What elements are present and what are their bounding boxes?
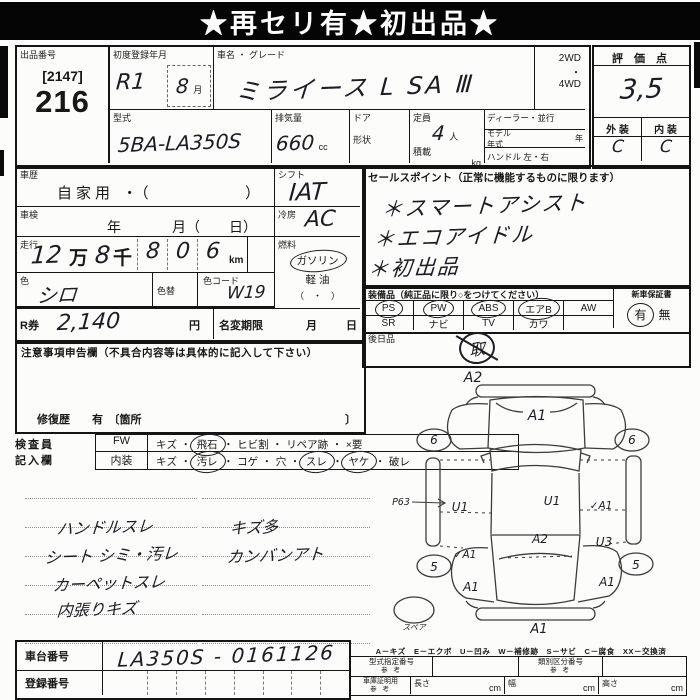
displacement-cell: 排気量 660 cc [272, 110, 350, 163]
registration-row: 登録番号 [17, 671, 349, 695]
condition-item: 飛石 [195, 437, 220, 452]
registration-label: 登録番号 [17, 671, 103, 695]
chassis-row: 車台番号 LA350S - 0161126 [17, 642, 349, 671]
door-label: ドア [350, 110, 409, 125]
damage-annotation: A1 [529, 622, 547, 637]
rticket-value: 2,140 [56, 309, 121, 336]
ext-int-values: C C [594, 137, 689, 161]
inspector-row-labels: 検査員 記入欄 [15, 436, 93, 468]
note-text: 内張りキズ [56, 595, 138, 622]
recolor-cell: 色替 [152, 273, 198, 306]
score-label: 評 価 点 [594, 47, 689, 66]
equipment-item-SR: SR [364, 316, 413, 330]
lot-number: 216 [17, 84, 108, 120]
spec-ref-row1: 型式指定番号 参 考 類別区分番号 参 考 [351, 657, 686, 677]
sales-line: ＊エコアイドル [373, 218, 536, 254]
exterior-grade-cell: C [594, 137, 642, 161]
ac-cell: 冷房 AC [275, 207, 360, 237]
class-ref-cell: 類別区分番号 参 考 [519, 657, 603, 676]
condition-item: リペア跡 [286, 439, 328, 451]
side-mirrors [481, 453, 590, 463]
mileage-digit: 8 [145, 239, 161, 264]
registration-value-cells [103, 671, 349, 695]
mileage-digit: 0 [175, 239, 191, 264]
damage-annotation: ✓A1 [454, 549, 477, 561]
damage-annotation: 5 [430, 560, 438, 574]
height-label: 高さ [602, 678, 618, 689]
fw-cell: FW [96, 435, 148, 451]
type-ref-value [433, 657, 519, 676]
color-label: 色 [20, 274, 29, 287]
recolor-label: 色替 [157, 284, 175, 297]
first-registration-cell: 初度登録年月 R1 8 月 [110, 47, 214, 110]
equipment-header: 装備品（純正品に限り○をつけてください） 新車保証書 [364, 287, 689, 300]
damage-annotation: A2 [463, 370, 483, 386]
mileage-man-unit: 万 [69, 243, 88, 270]
damage-annotation: P63 [392, 497, 410, 508]
class-ref-label: 類別区分番号 [538, 657, 583, 666]
front-fender-right [585, 404, 626, 449]
height-unit: cm [671, 683, 683, 693]
condition-item: キズ [156, 439, 177, 451]
inspector-label-1: 検査員 [15, 436, 93, 452]
warranty-cell: 有 無 [613, 300, 689, 328]
scan-artifact [0, 46, 8, 118]
damage-annotation: A1 [598, 575, 615, 589]
type-ref-label: 型式指定番号 [369, 657, 414, 666]
score-value: 3,5 [619, 73, 664, 105]
condition-item: ヒビ割 [237, 439, 269, 451]
reg-month-unit: 月 [193, 85, 202, 95]
reg-month-value: 8 [175, 74, 189, 98]
rticket-unit: 円 [189, 317, 200, 333]
scan-artifact [0, 150, 4, 176]
model-year-row: モデル年式 年 [485, 130, 585, 148]
damage-annotation: スペア [402, 623, 426, 632]
condition-item: 穴 [276, 456, 287, 468]
shape-label: 形状 [350, 125, 409, 146]
rear-bumper [476, 608, 595, 620]
drive-dot: ・ [535, 64, 581, 79]
equipment-item-label: ABS [476, 303, 500, 314]
equipment-item-AW: AW [563, 301, 613, 315]
fuel-paren: （ ・ ） [275, 289, 360, 302]
item-separator: ・ [259, 457, 275, 468]
displacement-value: 660 [275, 130, 315, 155]
warranty-no: 無 [659, 306, 671, 323]
color-value: シロ [36, 278, 78, 308]
class-ref-sub: 参 考 [519, 667, 602, 674]
sales-line: ＊スマートアシスト [381, 186, 589, 223]
equipment-item-empty [563, 316, 613, 330]
interior-grade-cell: C [642, 137, 689, 161]
note-text: シート シミ・汚レ [44, 540, 179, 569]
inspection-cell: 車検 年 月（ 日） [17, 207, 274, 237]
damage-annotation: A1 [462, 580, 479, 594]
damage-annotation: 6 [628, 433, 636, 447]
damage-annotation: 6 [430, 433, 438, 447]
car-diagram-svg: A2A166P63U1U1✓A1A2U3✓A155A1A1A1スペア [368, 352, 690, 644]
dealer-stack-cell: ディーラー・並行 モデル年式 年 ハンドル 左・右 [485, 110, 585, 163]
auction-sheet: ★再セリ有★初出品★ 出品番号 [2147] 216 初度登録年月 R1 8 月… [0, 0, 700, 700]
capacity-value: 4 [431, 121, 445, 145]
width-cell: 幅 cm [505, 677, 599, 694]
warranty-yes: 有 [632, 306, 648, 323]
name-change-month: 月 [306, 317, 317, 333]
color-row: 色 シロ 色替 色コード W19 [17, 273, 274, 308]
cabin-sides [491, 473, 580, 534]
banner-title: ★再セリ有★初出品★ [200, 2, 500, 41]
fuel-cell: 燃料 ガソリン 軽 油 （ ・ ） [275, 237, 360, 308]
history-value: 自家用 ・（ [57, 182, 153, 203]
score-value-cell: 3,5 [594, 66, 689, 117]
equipment-item-label: PS [380, 303, 397, 314]
first-registration-value: R1 [115, 69, 146, 95]
interior-label: 内 装 [642, 118, 689, 136]
first-registration-label: 初度登録年月 [110, 47, 213, 62]
note-text: キズ多 [229, 513, 279, 539]
ac-label: 冷房 [275, 207, 299, 222]
mileage-sen-unit: 千 [113, 243, 132, 270]
sales-line: ＊初出品 [367, 250, 461, 283]
drive-4wd: 4WD [535, 79, 581, 90]
chassis-value-cell: LA350S - 0161126 [103, 642, 349, 670]
equipment-item-label: エアB [523, 301, 554, 316]
later-items-label: 後日品 [368, 332, 395, 345]
inspection-label: 車検 [20, 208, 38, 221]
model-year-unit: 年 [575, 133, 583, 144]
history-cell: 車歴 自家用 ・（ ） [17, 167, 274, 207]
equipment-item-PS: PS [364, 301, 413, 315]
class-ref-value [603, 657, 686, 676]
caution-box: 注意事項申告欄（不具合内容等は具体的に記入して下さい） 修復歴 有 〔箇所 〕 [15, 340, 366, 434]
annotation-arrow [412, 499, 445, 507]
garage-sub: 参 考 [351, 686, 410, 693]
top-banner: ★再セリ有★初出品★ [0, 2, 700, 40]
mileage-man-value: 12 [30, 240, 63, 269]
exterior-grade: C [611, 137, 624, 157]
rocker-right [626, 456, 641, 544]
fuel-gasoline: ガソリン [295, 253, 341, 268]
drive-cell: 2WD ・ 4WD [534, 47, 585, 110]
mileage-unit: km [229, 255, 243, 266]
right-mid-col: シフト IAT 冷房 AC 燃料 ガソリン 軽 油 （ ・ ） [274, 167, 360, 308]
lot-bracket: [2147] [17, 68, 108, 84]
length-label: 長さ [414, 678, 430, 689]
mileage-digit-cell: 6 [197, 239, 228, 270]
width-label: 幅 [508, 678, 516, 689]
equipment-item-label: AW [581, 303, 597, 314]
equipment-item-label: TV [482, 318, 495, 329]
garage-label: 車庫証明用 [363, 678, 398, 685]
lot-label: 出品番号 [17, 47, 108, 62]
mileage-cell: 走行 12 万 8 千 8 0 6 km [17, 237, 274, 273]
front-fender-left [448, 404, 489, 449]
fuel-gas-wrap: ガソリン [275, 253, 360, 268]
mileage-digit-cell: 8 [137, 239, 168, 270]
damage-annotation: 5 [632, 558, 640, 572]
ac-value: AC [304, 206, 336, 232]
rticket-label: R券 [20, 317, 39, 333]
note-text: カーペットスレ [52, 568, 166, 596]
equipment-item-TV: TV [463, 316, 513, 330]
lot-cell: 出品番号 [2147] 216 [17, 47, 110, 163]
warranty-label: 新車保証書 [613, 287, 689, 300]
spec-ref-table: 型式指定番号 参 考 類別区分番号 参 考 車庫証明用 参 考 長さ cm 幅 … [350, 656, 687, 696]
load-label: 積載 [410, 145, 484, 158]
inspection-month: 月（ [172, 217, 200, 237]
model-code-label: 型式 [110, 110, 271, 125]
car-name-label: 車名 ・ グレード [214, 47, 534, 62]
ext-int-header: 外 装 内 装 [594, 117, 689, 137]
condition-item: ×要 [346, 439, 363, 451]
repair-history-text: 修復歴 有 〔箇所 [37, 411, 142, 427]
inspector-label-2: 記入欄 [15, 452, 93, 468]
drive-2wd: 2WD [535, 53, 581, 64]
length-cell: 長さ cm [411, 677, 505, 694]
equipment-item-PW: PW [413, 301, 463, 315]
mileage-digit-cell: 0 [167, 239, 198, 270]
height-cell: 高さ cm [599, 677, 686, 694]
history-label: 車歴 [17, 167, 274, 182]
type-ref-cell: 型式指定番号 参 考 [351, 657, 433, 676]
capacity-label: 定員 [410, 110, 484, 125]
windshield [490, 445, 581, 472]
spec-ref-row2: 車庫証明用 参 考 長さ cm 幅 cm 高さ cm [351, 677, 686, 694]
equipment-item-ABS: ABS [463, 301, 513, 315]
notes-area: ハンドルスレ シート シミ・汚レ カーペットスレ 内張りキズ キズ多 カンバンア… [15, 470, 370, 640]
rticket-row: R券 2,140 円 名変期限 月 日 [17, 308, 360, 338]
caution-label: 注意事項申告欄（不具合内容等は具体的に記入して下さい） [17, 342, 364, 363]
scan-artifact [694, 42, 700, 88]
chassis-label: 車台番号 [17, 642, 103, 670]
equipment-item-label: SR [382, 318, 396, 329]
length-unit: cm [489, 683, 501, 693]
inspection-day: 日） [229, 217, 257, 237]
fuel-diesel: 軽 油 [275, 272, 360, 287]
equipment-label: 装備品（純正品に限り○をつけてください） [364, 287, 613, 300]
equipment-body: PSPWABSエアBAW SRナビTVカワ 有 無 [364, 300, 689, 328]
history-close: ） [245, 182, 260, 203]
mileage-empty-cell [247, 237, 275, 273]
model-year-label: モデル年式 [487, 128, 511, 150]
chassis-value: LA350S - 0161126 [116, 640, 335, 672]
displacement-unit: cc [319, 142, 328, 152]
item-separator: ・ [329, 440, 345, 451]
equipment-item-label: PW [428, 303, 448, 314]
note-text: カンバンアト [226, 540, 325, 567]
rear-fender-right [578, 546, 622, 602]
score-box: 評 価 点 3,5 外 装 内 装 C C [592, 45, 691, 169]
type-ref-sub: 参 考 [351, 667, 432, 674]
sales-point-box: セールスポイント（正常に機能するものに限ります） ＊スマートアシスト ＊エコアイ… [362, 165, 691, 289]
condition-item: コゲ [237, 456, 258, 468]
damage-annotation: A2 [531, 532, 548, 546]
equipment-row-1: PSPWABSエアBAW [364, 300, 613, 315]
color-code-value: W19 [226, 282, 266, 303]
mid-table: 車歴 自家用 ・（ ） 車検 年 月（ 日） 走行 12 万 8 千 8 0 6… [15, 165, 366, 344]
equipment-grid: PSPWABSエアBAW SRナビTVカワ [364, 300, 613, 328]
condition-item: キズ [156, 456, 177, 468]
damage-annotation: U3 [596, 535, 612, 549]
equipment-item-ナビ: ナビ [413, 316, 463, 330]
damage-annotation: A1 [527, 408, 546, 424]
reg-month-subcell: 8 月 [167, 65, 211, 107]
mileage-digit: 6 [205, 239, 221, 264]
damage-annotation: U1 [452, 500, 468, 514]
name-change-cell: 名変期限 月 日 [213, 309, 360, 339]
shift-cell: シフト IAT [275, 167, 360, 207]
capacity-unit: 人 [449, 132, 458, 142]
damage-annotation: U1 [544, 494, 560, 508]
front-bumper [476, 385, 595, 397]
name-change-day: 日 [346, 317, 357, 333]
name-change-label: 名変期限 [219, 317, 263, 333]
sales-point-lines: ＊スマートアシスト ＊エコアイドル ＊初出品 [364, 188, 689, 282]
door-cell: ドア 形状 [350, 110, 410, 163]
model-code-value: 5BA-LA350S [117, 129, 242, 157]
exterior-label: 外 装 [594, 118, 642, 136]
repair-history-close: 〕 [345, 411, 356, 427]
garage-cell: 車庫証明用 参 考 [351, 677, 411, 694]
capacity-cell: 定員 4 人 積載 kg [410, 110, 485, 163]
sales-point-label: セールスポイント（正常に機能するものに限ります） [364, 167, 689, 188]
interior-grade: C [659, 137, 672, 157]
condition-item: 汚レ [195, 454, 220, 469]
width-unit: cm [583, 683, 595, 693]
interior-cell: 内装 [96, 452, 148, 469]
model-code-cell: 型式 5BA-LA350S [110, 110, 272, 163]
inspection-year: 年 [107, 217, 121, 237]
equipment-item-エアB: エアB [513, 301, 563, 315]
note-text: ハンドルスレ [56, 512, 154, 539]
displacement-label: 排気量 [272, 110, 349, 125]
header-table: 出品番号 [2147] 216 初度登録年月 R1 8 月 車名 ・ グレード … [15, 45, 591, 169]
spare-tire [394, 597, 434, 623]
car-name-cell: 車名 ・ グレード ミライース L SA Ⅲ [214, 47, 534, 110]
car-name-value: ミライース L SA Ⅲ [234, 64, 476, 107]
equipment-box: 装備品（純正品に限り○をつけてください） 新車保証書 PSPWABSエアBAW … [362, 285, 691, 334]
chassis-table: 車台番号 LA350S - 0161126 登録番号 [15, 640, 351, 700]
damage-annotation: ✓A1 [590, 500, 613, 512]
shift-value: IAT [288, 177, 326, 206]
car-diagram: A2A166P63U1U1✓A1A2U3✓A155A1A1A1スペア [368, 352, 690, 644]
mileage-sen-value: 8 [94, 241, 111, 270]
item-separator: ・ [270, 440, 286, 451]
condition-item: スレ [304, 454, 329, 469]
